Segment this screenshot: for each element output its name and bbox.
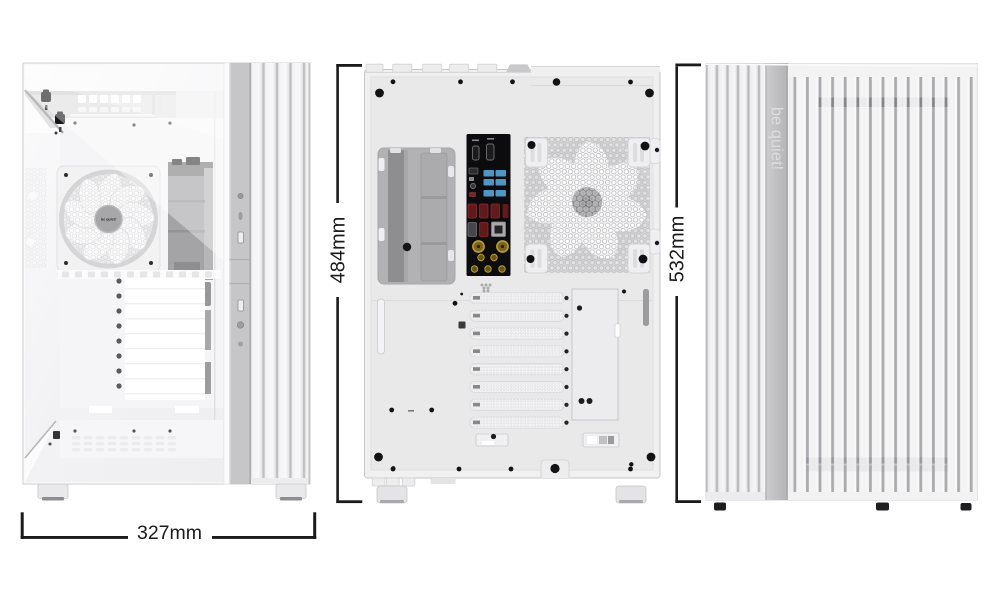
svg-text:be quiet!: be quiet!	[101, 218, 116, 222]
svg-text:532mm: 532mm	[667, 216, 689, 283]
svg-text:327mm: 327mm	[137, 522, 202, 544]
svg-text:484mm: 484mm	[328, 217, 350, 284]
svg-text:be quiet!: be quiet!	[767, 107, 785, 170]
